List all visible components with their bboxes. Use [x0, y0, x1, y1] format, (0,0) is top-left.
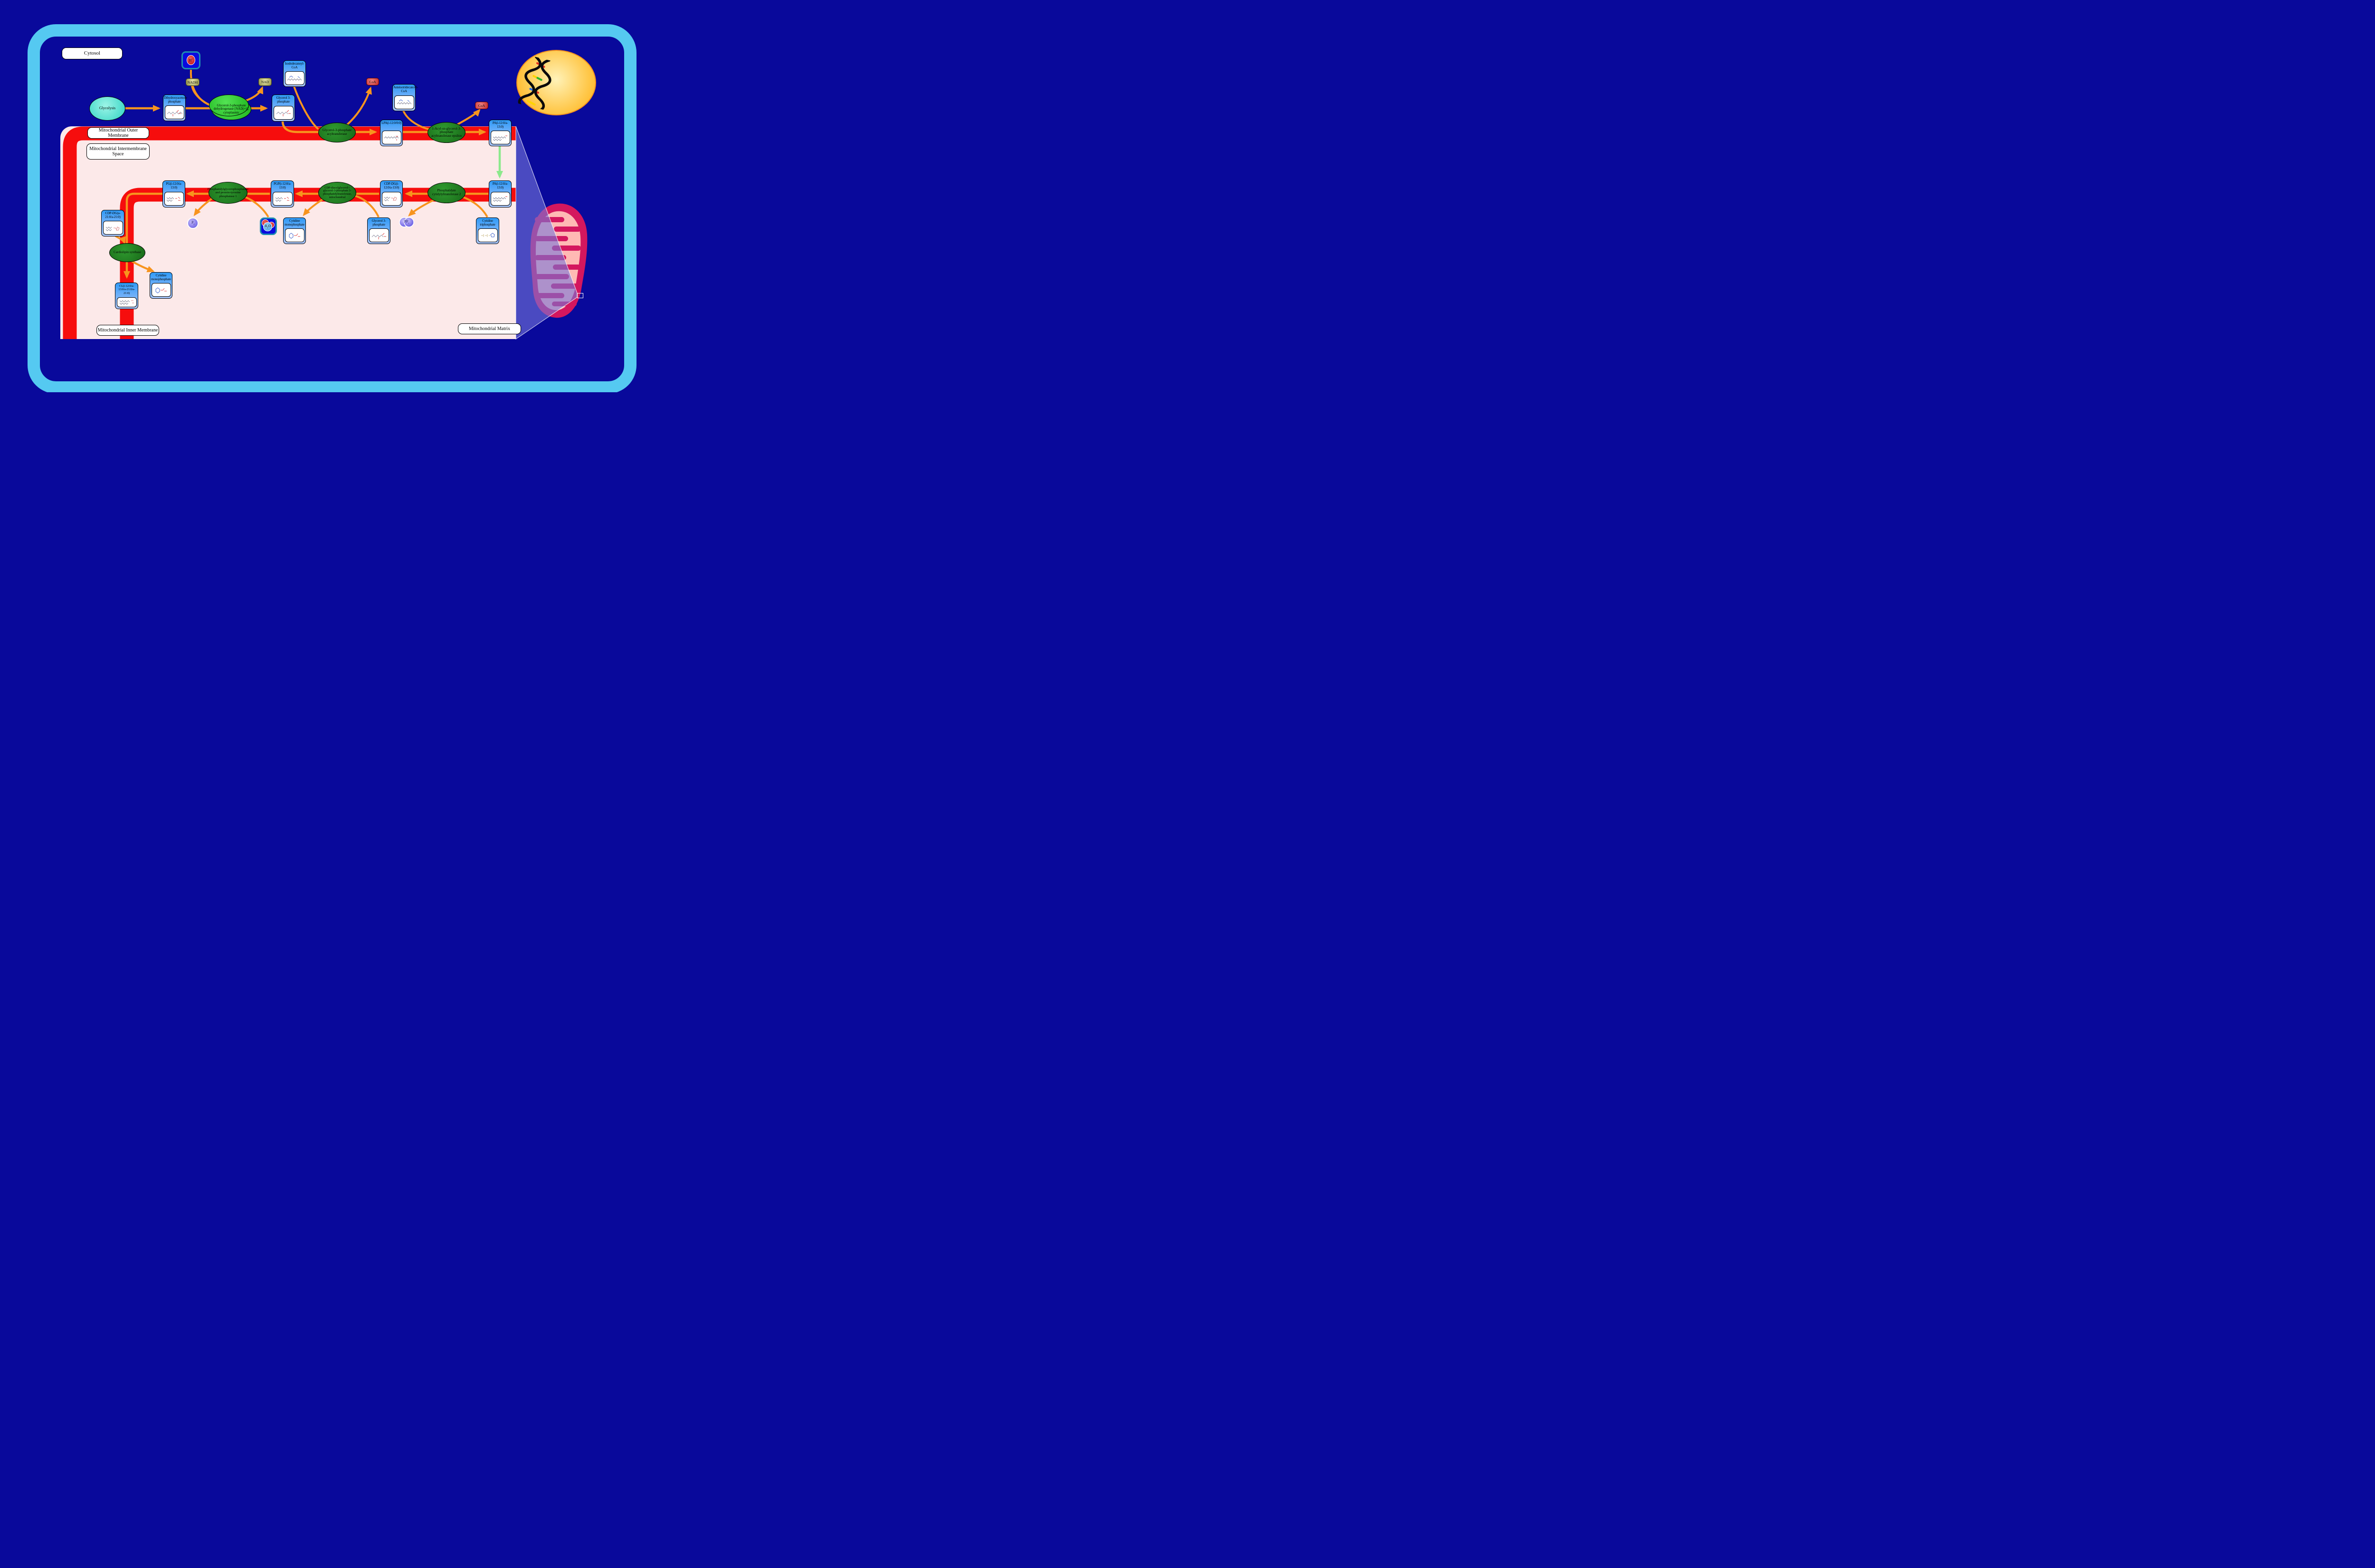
nadh-node[interactable]: NADH: [186, 78, 199, 86]
edge-anteisocoa-to-agpat: [403, 111, 430, 130]
metabolite-lpa[interactable]: LPA(i-12:0/0:0): [380, 120, 403, 146]
metabolite-anteisotridecanoyl-coa[interactable]: Anteisotridecanoyl-CoA: [392, 84, 416, 111]
cytosol-label: Cytosol: [62, 47, 123, 59]
metabolite-g3p-matrix[interactable]: Glycerol 3-phosphate: [367, 217, 390, 244]
ppi-label: PPi: [404, 219, 409, 225]
intermembrane-space-label: Mitochondrial Intermembrane Space: [86, 143, 150, 160]
inner-membrane-label: Mitochondrial Inner Membrane: [96, 325, 159, 336]
edge-isocoa-to-gpat: [294, 86, 318, 129]
structure-cmp-matrix: [152, 283, 171, 297]
edge-g3p-to-cdpdagt: [354, 196, 379, 217]
enzyme-cardiolipin-synthase[interactable]: Cardiolipin synthase: [109, 243, 145, 262]
metabolite-pgp[interactable]: PGP(i-12:0/a-13:0): [271, 180, 294, 208]
metabolite-g3p-cytosol[interactable]: Glycerol 3-phosphate: [272, 94, 295, 122]
arrow-gpat-to-coa: [343, 88, 370, 128]
structure-cmp-inner: [285, 228, 304, 242]
edge-h2o-to-pgpase: [240, 196, 268, 217]
coa-node-1[interactable]: CoA: [366, 78, 379, 85]
pathway-diagram: Cytosol Mitochondrial Outer Membrane Mit…: [0, 0, 641, 392]
outer-membrane-label: Mitochondrial Outer Membrane: [87, 127, 149, 139]
h-plus-label: H+: [189, 58, 193, 63]
metabolite-ctp[interactable]: Cytidine triphosphate: [476, 217, 499, 244]
arrow-pgpase-to-pi: [195, 197, 215, 215]
structure-lpa: [382, 131, 401, 144]
ppi-node[interactable]: PPi: [399, 217, 414, 228]
structure-anteisotridecanoyl-coa: [394, 95, 414, 109]
enzyme-cdpdag-g3p-transferase[interactable]: CDP-diacylglycerol--glycerol-3-phosphate…: [318, 182, 356, 204]
metabolite-cmp-inner[interactable]: Cytidine monophosphate: [283, 217, 306, 244]
structure-pa-inner: [491, 192, 510, 206]
glycolysis-node[interactable]: Glycolysis: [89, 96, 125, 121]
structure-cl: [117, 297, 137, 307]
metabolite-cdp-dg-a21[interactable]: CDP-DG(a-21:0/a-21:0): [101, 210, 124, 236]
structure-g3p: [274, 106, 294, 120]
structure-isododecanoyl-coa: [285, 71, 304, 85]
pi-node[interactable]: Pi: [187, 217, 199, 229]
structure-pgp: [273, 192, 293, 206]
matrix-label: Mitochondrial Matrix: [458, 323, 521, 334]
structure-pa-outer: [491, 131, 510, 144]
enzyme-pct2[interactable]: Phosphatidate cytidylyltransferase 2: [427, 182, 465, 203]
structure-ctp: [478, 228, 498, 242]
metabolite-cdp-dg-inner[interactable]: CDP-DG(i-12:0/a-13:0): [380, 180, 403, 208]
metabolite-pa-outer[interactable]: PA(i-12:0/a-13:0): [489, 120, 512, 146]
arrow-band-to-cl: [127, 194, 162, 277]
arrow-cls-to-cmp: [130, 260, 153, 271]
enzyme-agpat-epsilon[interactable]: 1-Acyl-sn-glycerol-3-phosphate acyltrans…: [427, 122, 465, 143]
metabolite-cmp-matrix[interactable]: Cytidine monophosphate: [150, 272, 172, 299]
h2o-icon[interactable]: H2O: [260, 217, 277, 235]
structure-cdp-dg: [382, 192, 401, 206]
structure-cdp-dg-a21: [103, 221, 123, 235]
structure-dhap: [165, 105, 184, 119]
metabolite-cl[interactable]: CL(i-12:0/a-13:0/a-21:0/a-21:0): [115, 283, 138, 309]
enzyme-gpat[interactable]: Glycerol-3-phosphate acyltransferase: [318, 123, 356, 142]
metabolite-pg[interactable]: PG(i-12:0/a-13:0): [162, 180, 185, 208]
arrow-cdpdga21-to-cls: [115, 236, 124, 243]
structure-pg: [164, 192, 184, 206]
nad-node[interactable]: NAD: [258, 78, 272, 86]
h2o-molecule-label: H2O: [263, 222, 272, 231]
metabolite-dhap[interactable]: Dihydroxyacetone phosphate: [163, 94, 186, 121]
enzyme-pgp-phosphatase[interactable]: Phosphatidylglycerophosphatase and prote…: [209, 182, 247, 204]
enzyme-gpd[interactable]: Glycerol-3-phosphate dehydrogenase [NAD(…: [211, 98, 251, 120]
metabolite-isododecanoyl-coa[interactable]: Isododecanoyl-CoA: [283, 60, 306, 87]
metabolite-pa-inner[interactable]: PA(i-12:0/a-13:0): [489, 180, 512, 208]
coa-node-2[interactable]: CoA: [475, 102, 488, 109]
h-plus-icon[interactable]: H+: [181, 51, 200, 69]
edge-ctp-to-pct2: [458, 196, 487, 217]
structure-g3p-matrix: [369, 228, 389, 242]
